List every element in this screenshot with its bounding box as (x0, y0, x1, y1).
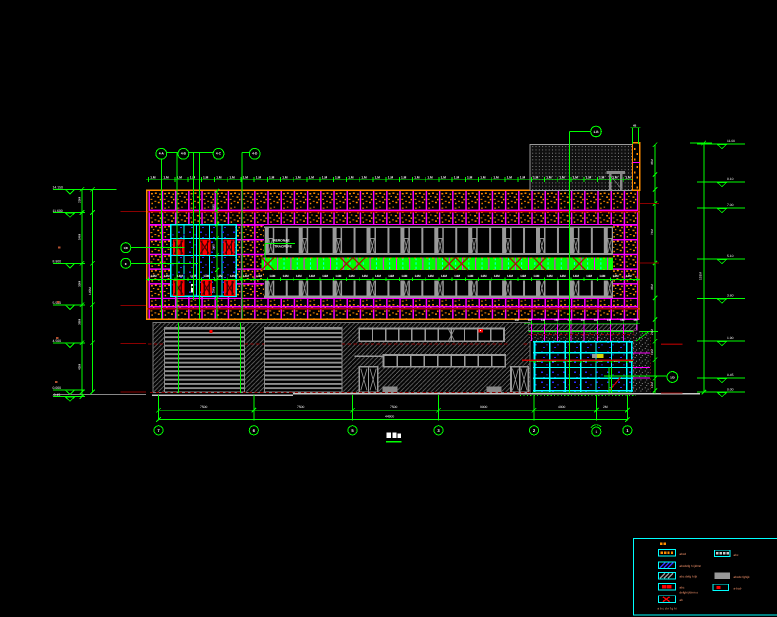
svg-text:14M: 14M (533, 274, 539, 278)
svg-text:1.M: 1.M (520, 175, 526, 179)
svg-text:39M: 39M (78, 281, 82, 287)
svg-text:1.M: 1.M (559, 175, 565, 179)
svg-text:1.M: 1.M (243, 175, 249, 179)
svg-text:1.M: 1.M (335, 175, 341, 179)
svg-text:-0.45: -0.45 (53, 393, 61, 397)
svg-text:1.M: 1.M (309, 175, 315, 179)
svg-text:1.90: 1.90 (727, 336, 734, 340)
svg-text:14.150: 14.150 (53, 186, 63, 190)
svg-text:7.00: 7.00 (727, 203, 734, 207)
svg-text:0.00: 0.00 (727, 387, 734, 391)
svg-text:14M: 14M (217, 274, 223, 278)
svg-text:8.900: 8.900 (53, 260, 62, 264)
svg-text:1.M: 1.M (388, 175, 394, 179)
svg-text:45M: 45M (78, 364, 82, 370)
svg-text:RERONAE: RERONAE (273, 239, 290, 243)
svg-text:14M: 14M (626, 274, 632, 278)
svg-text:1.M: 1.M (269, 175, 275, 179)
svg-text:151M: 151M (699, 272, 703, 280)
svg-text:1.M: 1.M (586, 175, 592, 179)
svg-text:14M: 14M (283, 274, 289, 278)
svg-text:14M: 14M (613, 274, 619, 278)
svg-text:14M: 14M (467, 274, 473, 278)
svg-text:1.M: 1.M (480, 175, 486, 179)
svg-text:14M: 14M (243, 274, 249, 278)
svg-text:14M: 14M (388, 274, 394, 278)
svg-text:4800: 4800 (558, 405, 566, 409)
svg-text:74M: 74M (650, 229, 654, 235)
svg-text:11.600: 11.600 (53, 209, 63, 213)
svg-text:9000: 9000 (480, 405, 488, 409)
svg-text:1.M: 1.M (361, 175, 367, 179)
svg-text:TRACPLFE: TRACPLFE (274, 244, 292, 248)
svg-text:1.M: 1.M (625, 175, 631, 179)
svg-text:7500: 7500 (390, 405, 398, 409)
svg-text:45M: 45M (650, 159, 654, 165)
svg-text:14M: 14M (481, 274, 487, 278)
svg-text:14M: 14M (362, 274, 368, 278)
svg-text:3M0: 3M0 (212, 244, 216, 250)
svg-text:11.00: 11.00 (727, 139, 735, 143)
svg-text:14M: 14M (164, 274, 170, 278)
svg-text:0.000: 0.000 (53, 386, 62, 390)
svg-text:7500: 7500 (297, 405, 305, 409)
svg-text:45: 45 (633, 124, 637, 128)
svg-text:14M: 14M (599, 274, 605, 278)
svg-text:abc: abc (734, 553, 739, 557)
svg-text:4-B: 4-B (181, 152, 187, 156)
svg-text:14M: 14M (296, 274, 302, 278)
svg-text:1.M: 1.M (599, 175, 605, 179)
svg-text:1.M: 1.M (401, 175, 407, 179)
svg-text:2M: 2M (603, 405, 608, 409)
svg-text:1/D: 1/D (670, 375, 676, 379)
svg-text:145M: 145M (88, 287, 92, 295)
svg-text:14M: 14M (322, 274, 328, 278)
svg-text:2M0: 2M0 (212, 204, 216, 210)
svg-text:1.M: 1.M (546, 175, 552, 179)
svg-text:2M0: 2M0 (212, 287, 216, 293)
svg-text:14M: 14M (401, 274, 407, 278)
svg-text:1.M: 1.M (203, 175, 209, 179)
svg-text:1.M: 1.M (163, 175, 169, 179)
svg-text:ab: ab (680, 598, 684, 602)
svg-text:1.M: 1.M (493, 175, 499, 179)
svg-text:1.M: 1.M (414, 175, 420, 179)
svg-text:1.M: 1.M (295, 175, 301, 179)
svg-text:1.M: 1.M (533, 175, 539, 179)
svg-text:1.M: 1.M (454, 175, 460, 179)
svg-text:1.M: 1.M (190, 175, 196, 179)
svg-text:7500: 7500 (200, 405, 208, 409)
svg-text:14M: 14M (177, 274, 183, 278)
svg-text:14M: 14M (335, 274, 341, 278)
svg-text:14M: 14M (309, 274, 315, 278)
svg-text:3.60: 3.60 (727, 294, 734, 298)
svg-text:44900: 44900 (385, 414, 394, 418)
svg-text:abcd: abcd (680, 552, 687, 556)
svg-text:4-D: 4-D (252, 152, 258, 156)
svg-text:abcdefg h ijklmn: abcdefg h ijklmn (680, 564, 702, 568)
svg-text:14M: 14M (586, 274, 592, 278)
svg-text:14M: 14M (520, 274, 526, 278)
svg-text:4-A: 4-A (159, 152, 165, 156)
svg-text:4-C: 4-C (216, 152, 222, 156)
svg-text:a-bcd-: a-bcd- (734, 587, 743, 591)
svg-text:14M: 14M (375, 274, 381, 278)
svg-text:E: E (125, 262, 127, 266)
svg-text:4.500: 4.500 (53, 339, 62, 343)
svg-text:1.M: 1.M (150, 175, 156, 179)
svg-text:1/E: 1/E (124, 246, 129, 250)
svg-text:19M: 19M (650, 349, 654, 355)
svg-text:14M: 14M (415, 274, 421, 278)
svg-text:38M: 38M (78, 319, 82, 325)
svg-text:1.M: 1.M (375, 175, 381, 179)
svg-text:1: 1 (595, 430, 597, 434)
svg-text:1.M: 1.M (256, 175, 262, 179)
svg-text:1.M: 1.M (348, 175, 354, 179)
svg-text:1.M: 1.M (282, 175, 288, 179)
svg-text:14M: 14M (428, 274, 434, 278)
svg-text:14M: 14M (547, 274, 553, 278)
svg-text:1.M: 1.M (612, 175, 618, 179)
svg-text:14M: 14M (441, 274, 447, 278)
svg-text:12M: 12M (650, 382, 654, 388)
svg-text:1.M: 1.M (573, 175, 579, 179)
svg-text:14M: 14M (269, 274, 275, 278)
svg-text:1M: 1M (515, 318, 520, 322)
svg-text:1.M: 1.M (322, 175, 328, 179)
svg-text:14M: 14M (573, 274, 579, 278)
svg-text:14M: 14M (560, 274, 566, 278)
svg-text:1.M: 1.M (216, 175, 222, 179)
svg-text:21M: 21M (650, 329, 654, 335)
svg-text:abc: abc (680, 585, 685, 589)
svg-text:14M: 14M (230, 274, 236, 278)
svg-text:14M: 14M (256, 274, 262, 278)
svg-text:abcde fghijk: abcde fghijk (734, 575, 751, 579)
svg-text:1.M: 1.M (467, 175, 473, 179)
svg-text:14M: 14M (203, 274, 209, 278)
svg-text:5.10: 5.10 (727, 254, 734, 258)
svg-text:1-B: 1-B (593, 130, 599, 134)
svg-text:54M: 54M (78, 234, 82, 240)
svg-text:14M: 14M (454, 274, 460, 278)
svg-text:14M: 14M (507, 274, 513, 278)
svg-text:5.500: 5.500 (53, 301, 62, 305)
svg-text:a b c d e f g h i: a b c d e f g h i (658, 606, 678, 610)
svg-text:0.45: 0.45 (727, 373, 734, 377)
svg-text:29M: 29M (78, 197, 82, 203)
svg-text:1.M: 1.M (229, 175, 235, 179)
svg-text:8.10: 8.10 (727, 177, 734, 181)
svg-text:35M: 35M (650, 284, 654, 290)
svg-text:14M: 14M (349, 274, 355, 278)
svg-text:defghi jklmn o: defghi jklmn o (680, 591, 699, 595)
svg-text:1.M: 1.M (507, 175, 513, 179)
svg-text:14M: 14M (494, 274, 500, 278)
svg-text:1.M: 1.M (441, 175, 447, 179)
svg-text:1.M: 1.M (427, 175, 433, 179)
svg-text:14M: 14M (151, 274, 157, 278)
svg-text:abc defg h ijk: abc defg h ijk (680, 575, 698, 579)
